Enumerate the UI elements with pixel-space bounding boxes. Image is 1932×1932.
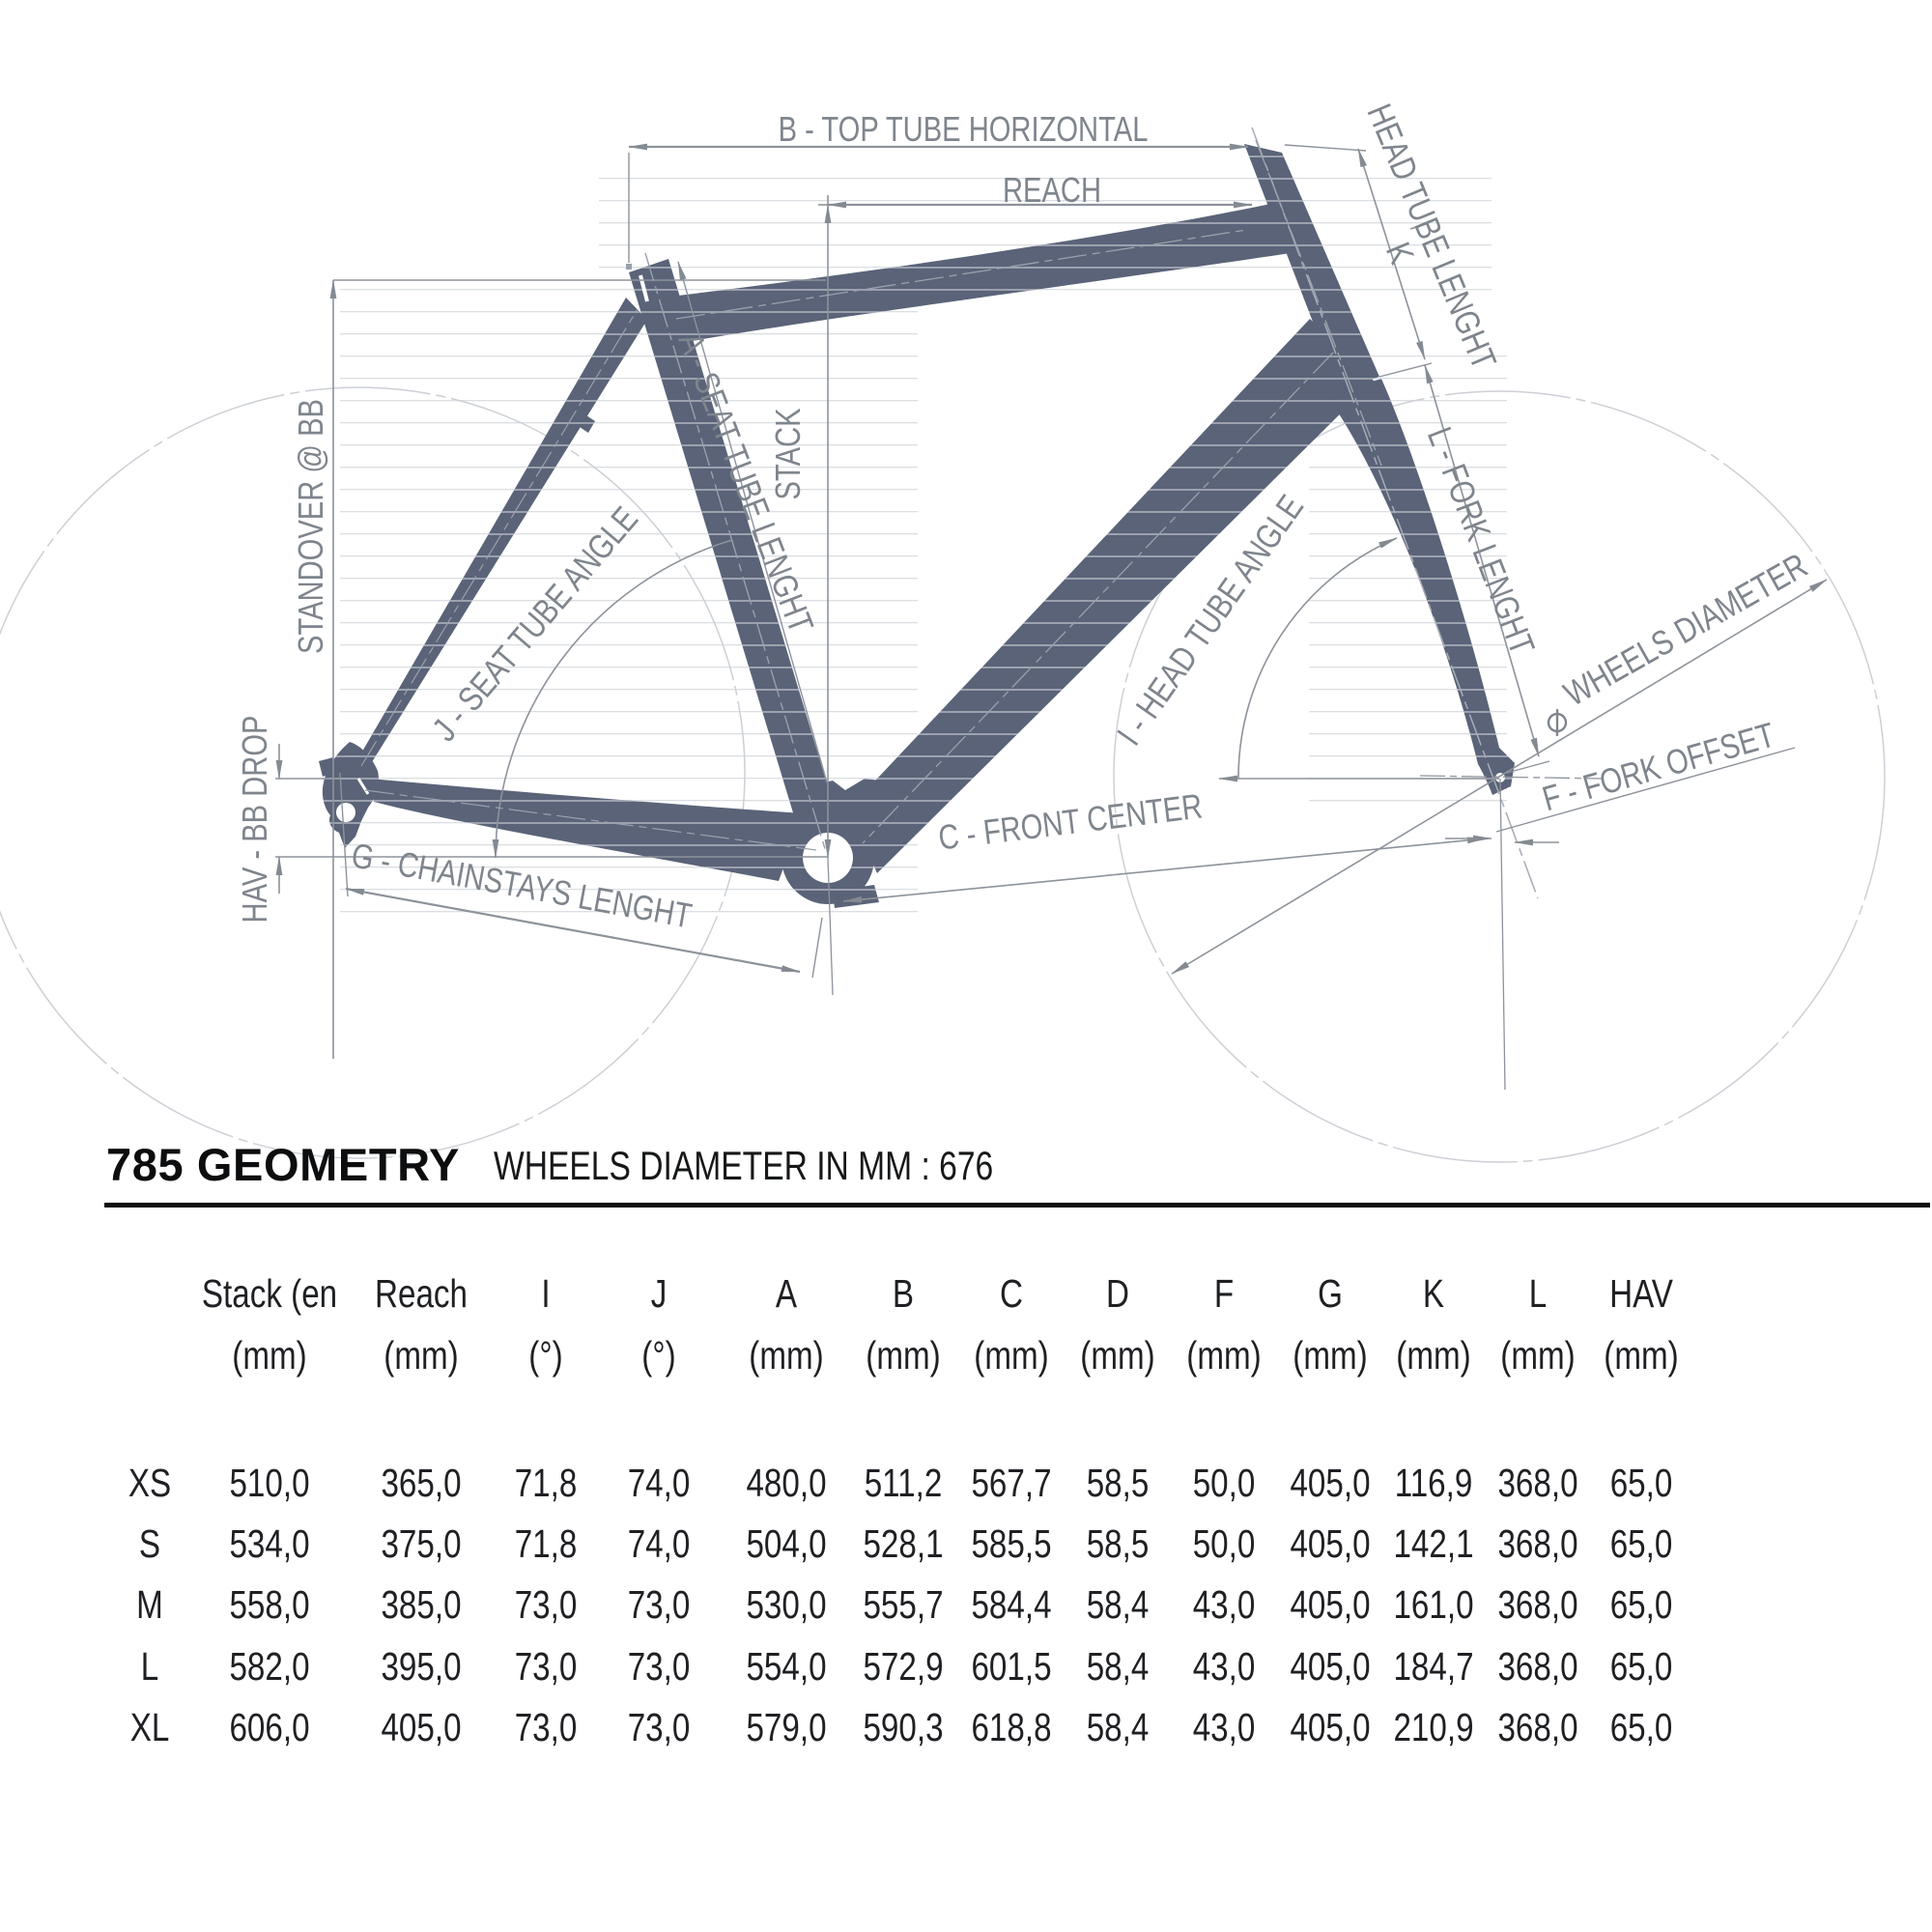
svg-text:584,4: 584,4 [971, 1582, 1051, 1627]
svg-text:534,0: 534,0 [229, 1521, 309, 1566]
svg-text:50,0: 50,0 [1193, 1461, 1256, 1505]
svg-text:50,0: 50,0 [1193, 1521, 1256, 1566]
svg-text:142,1: 142,1 [1393, 1521, 1473, 1566]
svg-text:B - TOP TUBE HORIZONTAL: B - TOP TUBE HORIZONTAL [779, 109, 1149, 149]
svg-text:530,0: 530,0 [746, 1582, 826, 1627]
svg-text:(mm): (mm) [1604, 1333, 1678, 1378]
svg-text:A: A [776, 1271, 797, 1316]
svg-text:(mm): (mm) [749, 1333, 823, 1378]
svg-text:558,0: 558,0 [229, 1582, 309, 1627]
svg-text:385,0: 385,0 [381, 1582, 461, 1627]
svg-text:(mm): (mm) [1186, 1333, 1261, 1378]
svg-text:HAV: HAV [1609, 1271, 1673, 1316]
svg-text:71,8: 71,8 [515, 1461, 578, 1505]
svg-text:528,1: 528,1 [863, 1521, 943, 1566]
svg-text:XS: XS [128, 1461, 171, 1505]
svg-text:184,7: 184,7 [1393, 1644, 1473, 1689]
svg-text:B: B [893, 1271, 914, 1316]
svg-text:365,0: 365,0 [381, 1461, 461, 1505]
svg-text:43,0: 43,0 [1193, 1644, 1256, 1689]
svg-text:(mm): (mm) [1293, 1333, 1367, 1378]
svg-text:(mm): (mm) [866, 1333, 940, 1378]
svg-text:WHEELS DIAMETER IN MM : 676: WHEELS DIAMETER IN MM : 676 [494, 1145, 993, 1189]
svg-text:(°): (°) [641, 1333, 675, 1378]
svg-text:511,2: 511,2 [865, 1461, 943, 1505]
svg-text:(mm): (mm) [1080, 1333, 1154, 1378]
svg-text:58,4: 58,4 [1087, 1705, 1150, 1749]
svg-text:554,0: 554,0 [746, 1644, 826, 1689]
svg-text:73,0: 73,0 [628, 1644, 691, 1689]
svg-text:405,0: 405,0 [381, 1705, 461, 1749]
svg-text:405,0: 405,0 [1290, 1644, 1370, 1689]
svg-text:405,0: 405,0 [1290, 1461, 1370, 1505]
svg-text:58,4: 58,4 [1087, 1582, 1150, 1627]
svg-text:504,0: 504,0 [746, 1521, 826, 1566]
svg-text:161,0: 161,0 [1393, 1582, 1473, 1627]
svg-text:65,0: 65,0 [1610, 1644, 1673, 1689]
svg-text:368,0: 368,0 [1497, 1582, 1577, 1627]
svg-text:(mm): (mm) [1396, 1333, 1470, 1378]
svg-text:582,0: 582,0 [229, 1644, 309, 1689]
svg-text:(°): (°) [528, 1333, 562, 1378]
svg-text:65,0: 65,0 [1610, 1521, 1673, 1566]
svg-text:405,0: 405,0 [1290, 1521, 1370, 1566]
svg-text:510,0: 510,0 [229, 1461, 309, 1505]
svg-text:STACK: STACK [768, 408, 808, 499]
svg-text:73,0: 73,0 [515, 1705, 578, 1749]
svg-text:REACH: REACH [1003, 170, 1101, 210]
svg-text:368,0: 368,0 [1497, 1461, 1577, 1505]
svg-text:58,4: 58,4 [1087, 1644, 1150, 1689]
svg-text:(mm): (mm) [974, 1333, 1048, 1378]
svg-text:572,9: 572,9 [863, 1644, 943, 1689]
svg-text:210,9: 210,9 [1393, 1705, 1473, 1749]
svg-text:K: K [1423, 1271, 1444, 1316]
svg-text:F: F [1214, 1271, 1234, 1316]
svg-text:74,0: 74,0 [628, 1521, 691, 1566]
svg-text:368,0: 368,0 [1497, 1521, 1577, 1566]
svg-text:L: L [141, 1644, 158, 1689]
svg-text:Stack (en: Stack (en [202, 1271, 337, 1316]
svg-text:480,0: 480,0 [746, 1461, 826, 1505]
svg-text:116,9: 116,9 [1395, 1461, 1473, 1505]
svg-text:58,5: 58,5 [1087, 1521, 1150, 1566]
svg-text:368,0: 368,0 [1497, 1705, 1577, 1749]
svg-text:STANDOVER @ BB: STANDOVER @ BB [291, 399, 330, 654]
svg-text:73,0: 73,0 [515, 1644, 578, 1689]
svg-text:(mm): (mm) [232, 1333, 306, 1378]
svg-text:C: C [1000, 1271, 1023, 1316]
svg-text:405,0: 405,0 [1290, 1705, 1370, 1749]
svg-text:579,0: 579,0 [746, 1705, 826, 1749]
svg-text:65,0: 65,0 [1610, 1582, 1673, 1627]
svg-text:73,0: 73,0 [628, 1705, 691, 1749]
svg-text:(mm): (mm) [1500, 1333, 1575, 1378]
svg-text:D: D [1106, 1271, 1129, 1316]
svg-text:Reach: Reach [375, 1271, 468, 1316]
svg-text:785 GEOMETRY: 785 GEOMETRY [106, 1139, 460, 1190]
svg-text:G: G [1318, 1271, 1343, 1316]
svg-text:618,8: 618,8 [971, 1705, 1051, 1749]
svg-text:395,0: 395,0 [381, 1644, 461, 1689]
svg-text:M: M [136, 1582, 163, 1627]
svg-text:65,0: 65,0 [1610, 1705, 1673, 1749]
svg-text:368,0: 368,0 [1497, 1644, 1577, 1689]
svg-text:73,0: 73,0 [628, 1582, 691, 1627]
svg-text:405,0: 405,0 [1290, 1582, 1370, 1627]
svg-text:I: I [541, 1271, 550, 1316]
svg-text:73,0: 73,0 [515, 1582, 578, 1627]
svg-text:601,5: 601,5 [971, 1644, 1051, 1689]
svg-text:58,5: 58,5 [1087, 1461, 1150, 1505]
svg-text:555,7: 555,7 [863, 1582, 943, 1627]
svg-text:(mm): (mm) [384, 1333, 458, 1378]
svg-text:43,0: 43,0 [1193, 1705, 1256, 1749]
svg-text:606,0: 606,0 [229, 1705, 309, 1749]
svg-text:74,0: 74,0 [628, 1461, 691, 1505]
svg-text:HAV - BB DROP: HAV - BB DROP [235, 716, 274, 923]
svg-text:71,8: 71,8 [515, 1521, 578, 1566]
svg-text:L: L [1529, 1271, 1547, 1316]
svg-text:585,5: 585,5 [971, 1521, 1051, 1566]
svg-text:590,3: 590,3 [863, 1705, 943, 1749]
svg-text:43,0: 43,0 [1193, 1582, 1256, 1627]
svg-text:375,0: 375,0 [381, 1521, 461, 1566]
svg-text:S: S [139, 1521, 160, 1566]
svg-text:J: J [651, 1271, 668, 1316]
svg-text:XL: XL [130, 1705, 170, 1749]
svg-text:65,0: 65,0 [1610, 1461, 1673, 1505]
svg-text:567,7: 567,7 [971, 1461, 1051, 1505]
